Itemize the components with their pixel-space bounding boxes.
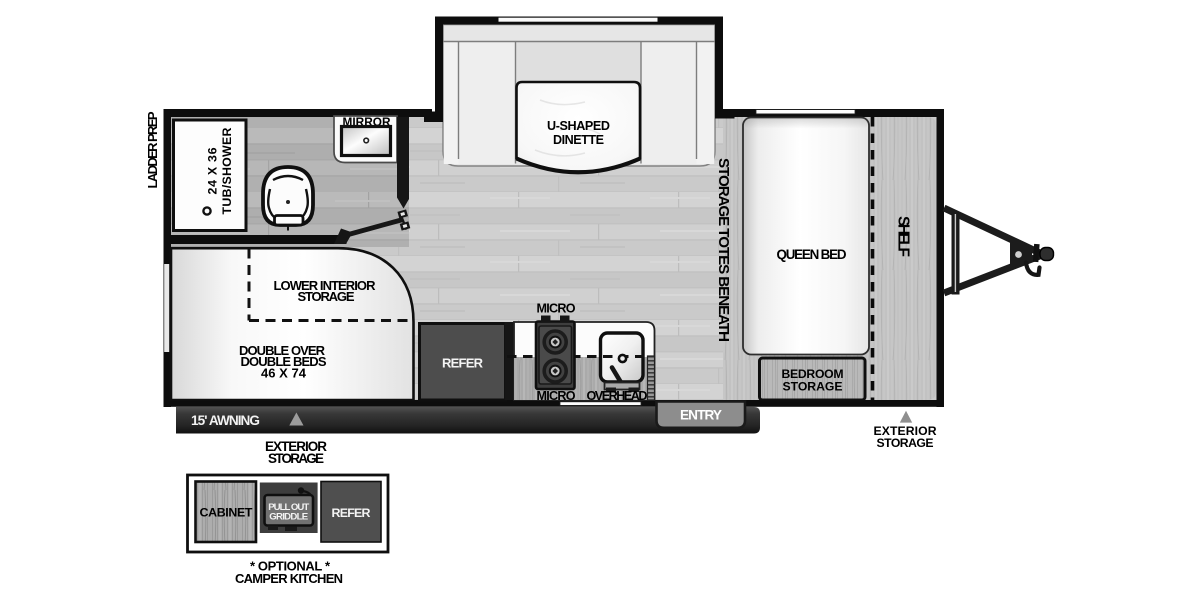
svg-text:STORAGE TOTES BENEATH: STORAGE TOTES BENEATH (715, 158, 732, 342)
svg-text:STORAGE: STORAGE (298, 289, 355, 304)
svg-text:QUEEN BED: QUEEN BED (777, 247, 847, 262)
svg-text:TUB/SHOWER: TUB/SHOWER (220, 127, 234, 214)
svg-text:MICRO: MICRO (537, 389, 576, 403)
svg-text:CAMPER KITCHEN: CAMPER KITCHEN (235, 571, 343, 586)
svg-text:15' AWNING: 15' AWNING (191, 413, 260, 428)
svg-text:46 X 74: 46 X 74 (261, 366, 307, 381)
svg-text:LADDER PREP: LADDER PREP (145, 111, 160, 188)
svg-text:STORAGE: STORAGE (268, 451, 324, 466)
svg-text:ENTRY: ENTRY (680, 407, 722, 422)
svg-text:DINETTE: DINETTE (553, 133, 604, 147)
svg-text:CABINET: CABINET (200, 506, 253, 520)
svg-text:24 X 36: 24 X 36 (206, 147, 220, 194)
svg-text:REFER: REFER (332, 506, 371, 520)
svg-text:GRIDDLE: GRIDDLE (269, 511, 309, 522)
svg-text:MICRO: MICRO (537, 302, 576, 316)
svg-text:STORAGE: STORAGE (877, 436, 934, 450)
svg-text:OVERHEAD: OVERHEAD (587, 389, 648, 403)
svg-text:SHELF: SHELF (895, 216, 912, 257)
svg-text:U-SHAPED: U-SHAPED (547, 119, 610, 133)
svg-text:REFER: REFER (442, 356, 484, 371)
svg-text:STORAGE: STORAGE (783, 380, 843, 394)
